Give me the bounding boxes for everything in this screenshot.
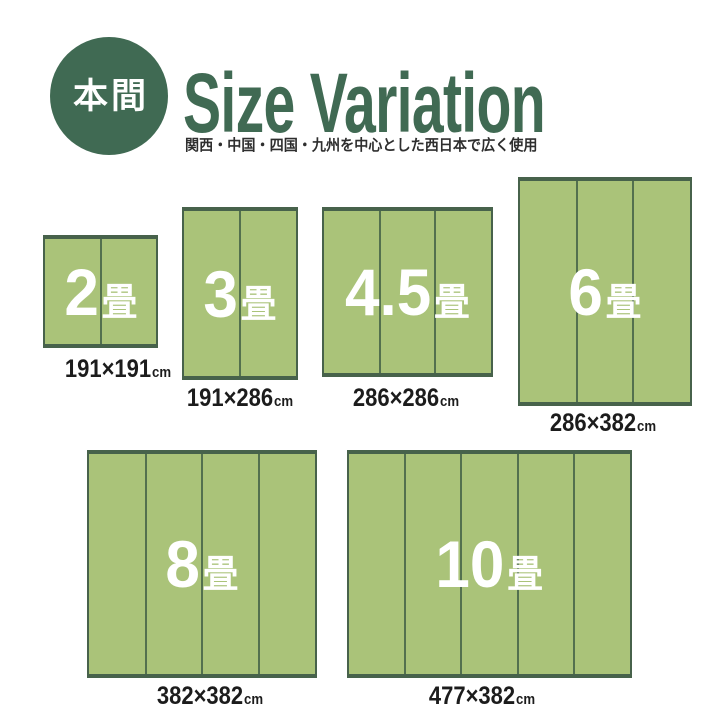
page-subtitle: 関西・中国・四国・九州を中心とした西日本で広く使用 bbox=[185, 137, 538, 155]
mat-3jo: 3 畳 bbox=[182, 207, 298, 380]
size-unit: cm bbox=[516, 691, 535, 708]
mat-8jo: 8 畳 bbox=[87, 450, 317, 678]
mat-8jo-number: 8 bbox=[165, 531, 200, 597]
size-unit: cm bbox=[274, 393, 293, 410]
mat-6jo-unit: 畳 bbox=[606, 284, 642, 322]
size-label-6jo: 286×382cm bbox=[550, 411, 656, 436]
mat-8jo-unit: 畳 bbox=[203, 556, 239, 594]
size-label-8jo: 382×382cm bbox=[157, 684, 263, 709]
mat-2jo-number: 2 bbox=[64, 259, 99, 325]
size-value: 382×382 bbox=[157, 682, 243, 710]
mat-4-5jo-label: 4.5 畳 bbox=[324, 211, 491, 373]
size-value: 477×382 bbox=[429, 682, 515, 710]
mat-6jo-number: 6 bbox=[568, 259, 603, 325]
mat-6jo: 6 畳 bbox=[518, 177, 692, 406]
mat-4-5jo: 4.5 畳 bbox=[322, 207, 493, 377]
mat-4-5jo-number: 4.5 bbox=[345, 259, 431, 325]
size-value: 191×286 bbox=[187, 384, 273, 412]
mat-3jo-number: 3 bbox=[203, 261, 238, 327]
size-variation-infographic: 本間 Size Variation 関西・中国・四国・九州を中心とした西日本で広… bbox=[0, 0, 720, 720]
mat-3jo-label: 3 畳 bbox=[184, 211, 296, 376]
mat-6jo-label: 6 畳 bbox=[520, 181, 690, 402]
size-unit: cm bbox=[244, 691, 263, 708]
size-label-10jo: 477×382cm bbox=[429, 684, 535, 709]
size-label-3jo: 191×286cm bbox=[187, 386, 293, 411]
honma-badge-circle: 本間 bbox=[50, 37, 168, 155]
mat-10jo-unit: 畳 bbox=[508, 556, 544, 594]
honma-badge-label: 本間 bbox=[73, 79, 149, 114]
mat-4-5jo-unit: 畳 bbox=[434, 284, 470, 322]
size-unit: cm bbox=[637, 418, 656, 435]
mat-10jo-label: 10 畳 bbox=[349, 454, 630, 674]
mat-2jo-label: 2 畳 bbox=[45, 239, 156, 344]
mat-2jo-unit: 畳 bbox=[101, 284, 137, 322]
size-value: 191×191 bbox=[65, 355, 151, 383]
size-unit: cm bbox=[440, 393, 459, 410]
mat-3jo-unit: 畳 bbox=[241, 286, 277, 324]
size-label-2jo: 191×191cm bbox=[65, 357, 171, 382]
size-value: 286×382 bbox=[550, 409, 636, 437]
mat-10jo-number: 10 bbox=[436, 531, 505, 597]
mat-8jo-label: 8 畳 bbox=[89, 454, 315, 674]
mat-10jo: 10 畳 bbox=[347, 450, 632, 678]
size-value: 286×286 bbox=[353, 384, 439, 412]
size-label-4-5jo: 286×286cm bbox=[353, 386, 459, 411]
size-unit: cm bbox=[152, 364, 171, 381]
mat-2jo: 2 畳 bbox=[43, 235, 158, 348]
